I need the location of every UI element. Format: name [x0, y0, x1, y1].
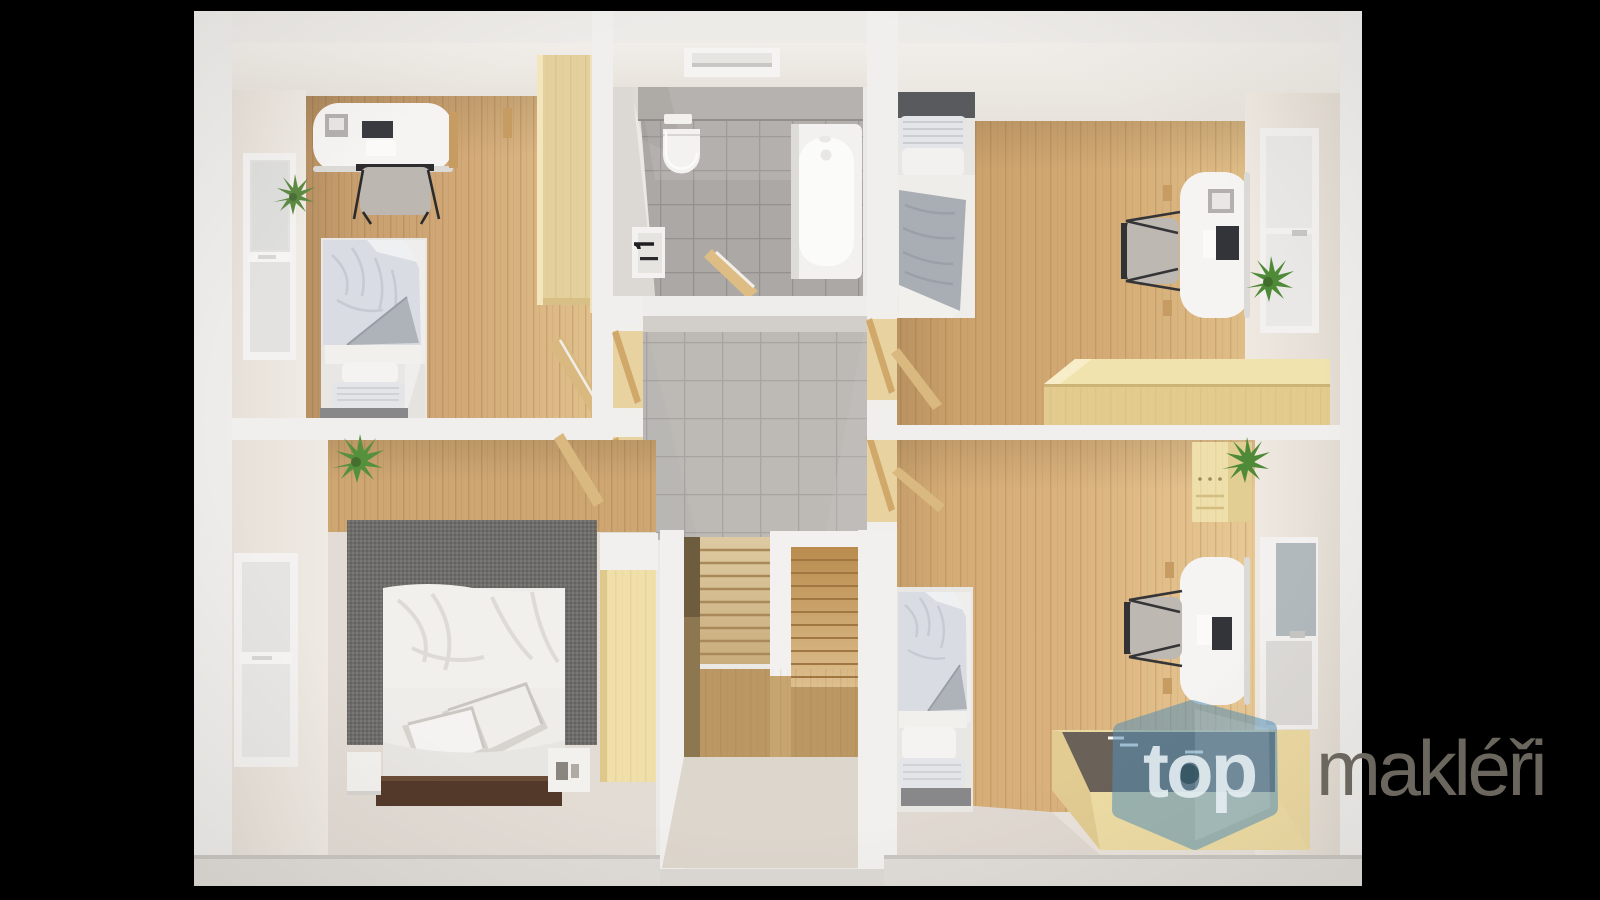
svg-text:top: top: [1143, 726, 1256, 814]
svg-text:makléři: makléři: [1316, 724, 1544, 812]
